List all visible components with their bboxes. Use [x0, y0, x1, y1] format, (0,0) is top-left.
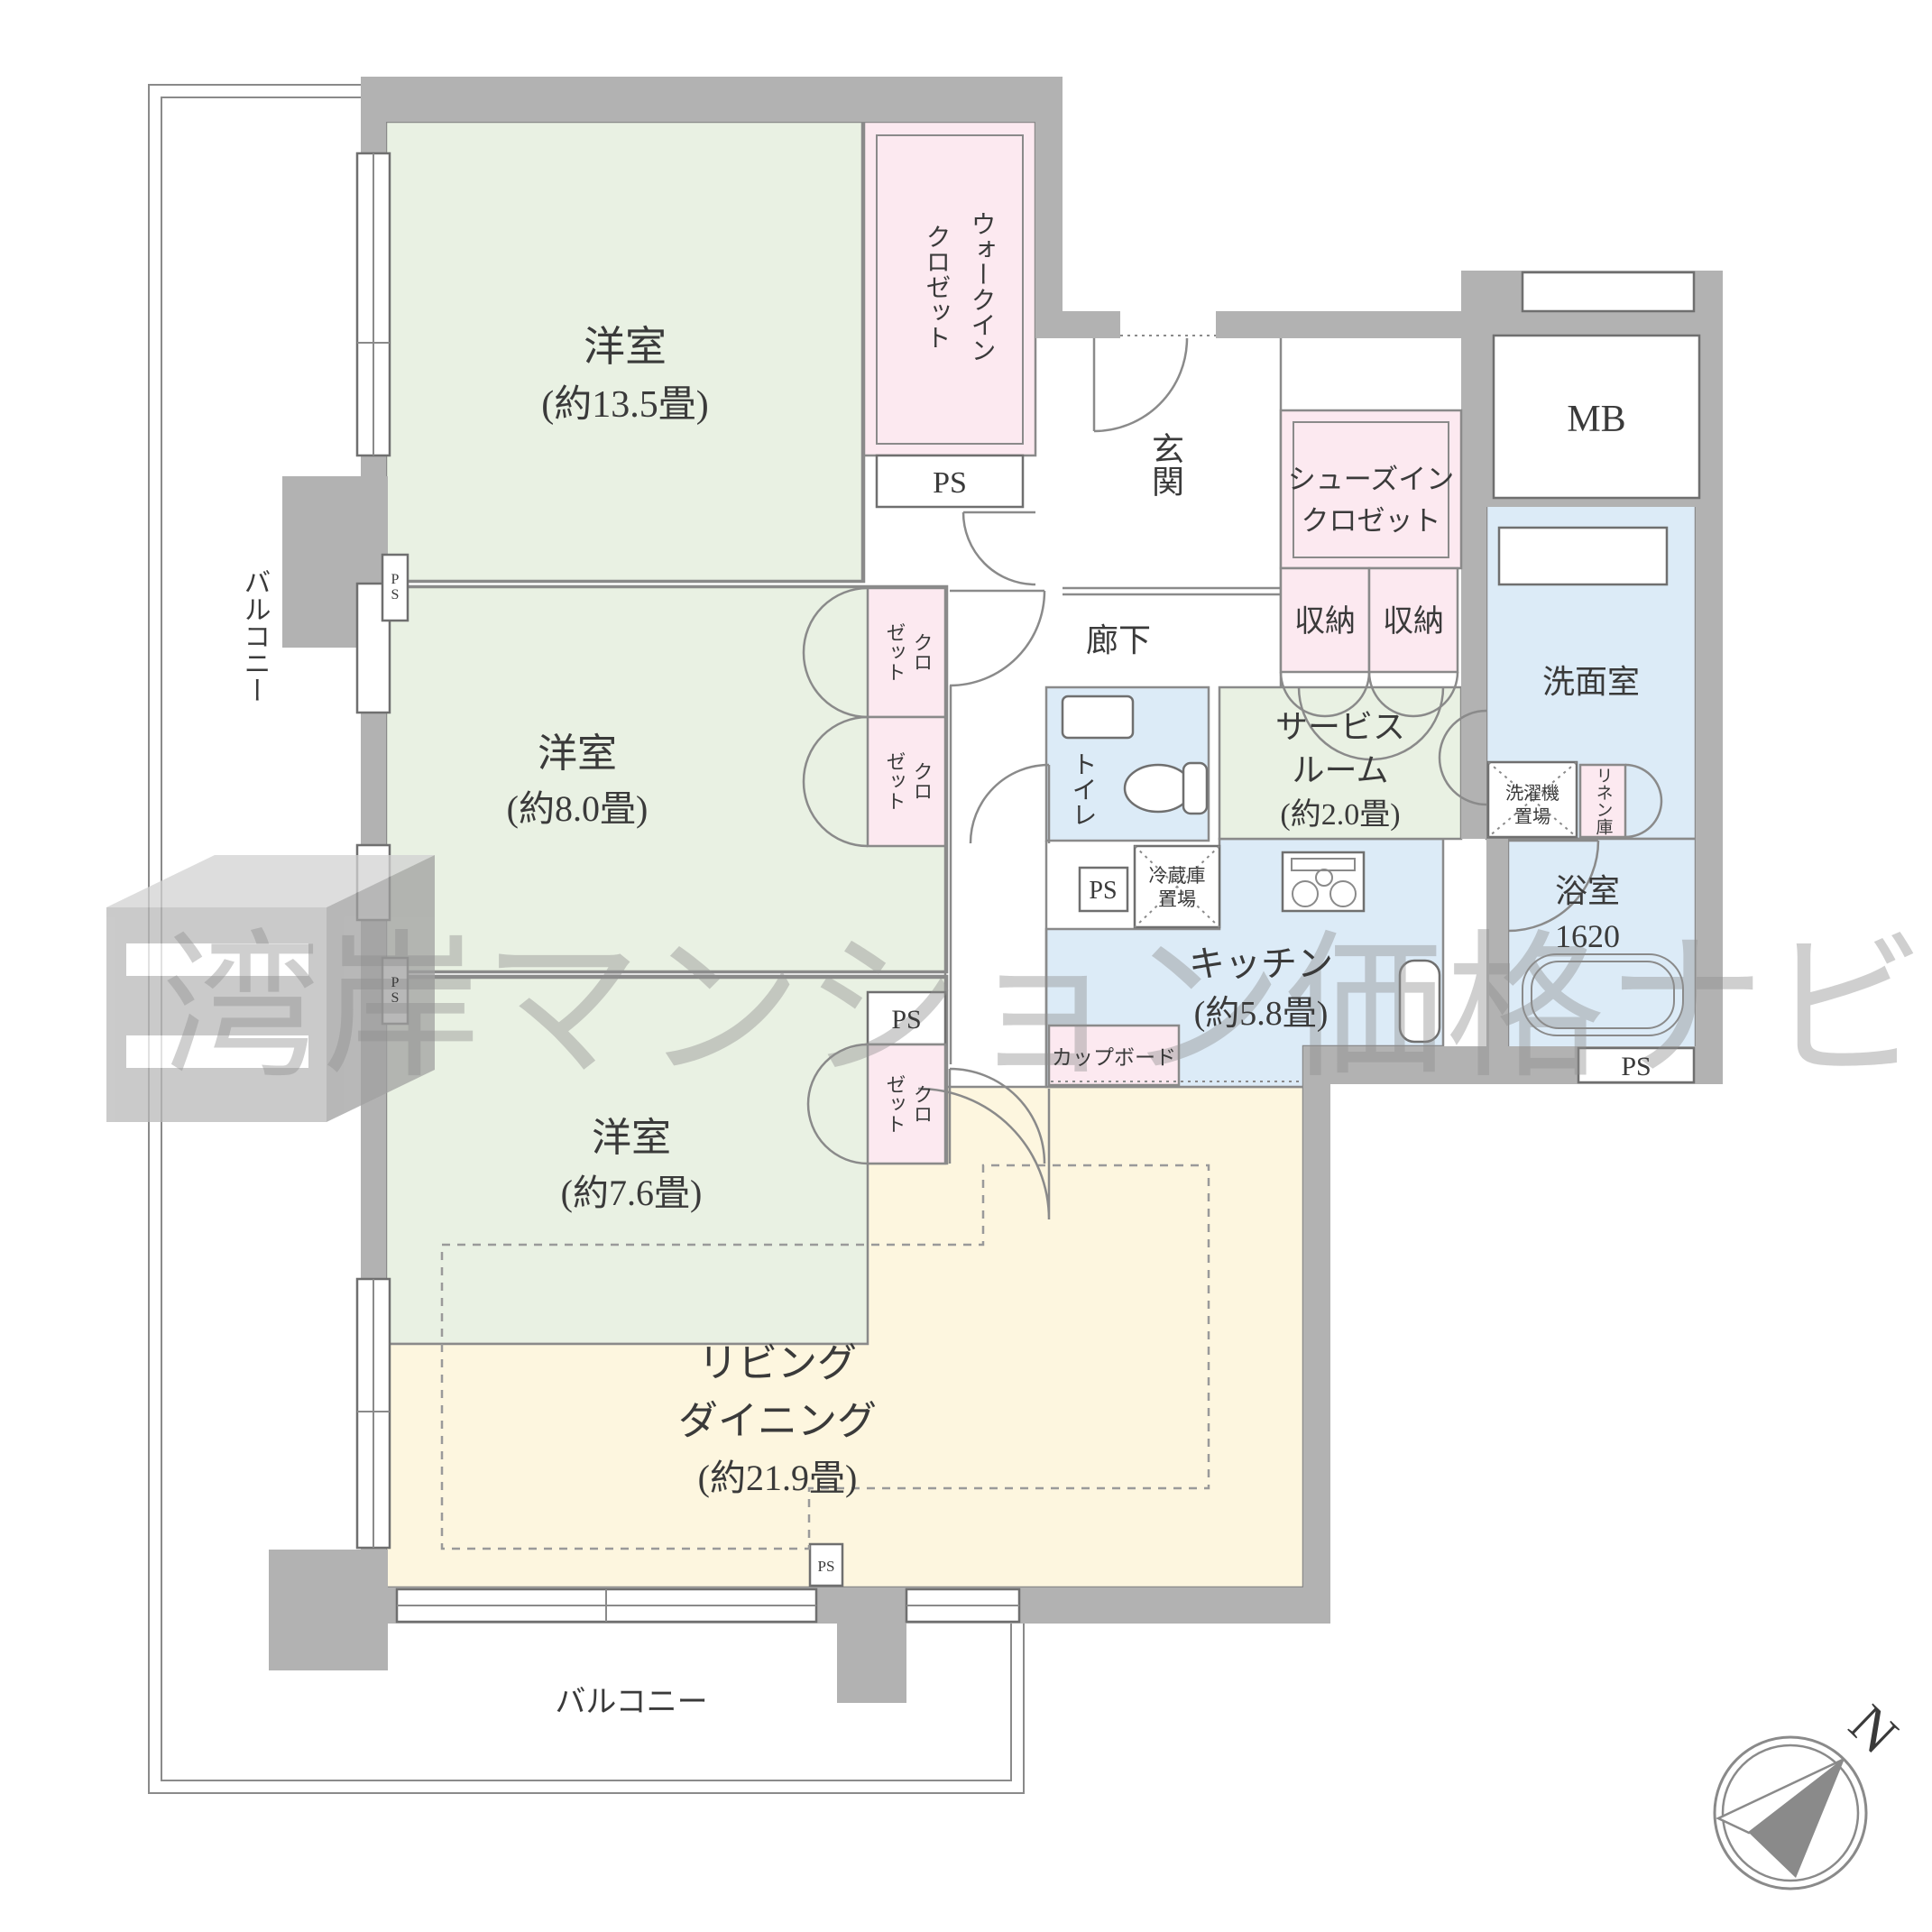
entrance-step-line [1063, 588, 1281, 594]
label-living-size: (約21.9畳) [698, 1458, 858, 1498]
room-western-8 [386, 586, 947, 972]
label-western13-size: (約13.5畳) [541, 384, 708, 426]
label-fridge-line1: 冷蔵庫 [1149, 865, 1206, 887]
door-arc-western8 [950, 591, 1044, 685]
label-closet-upper-col1: クロ [911, 632, 934, 672]
label-sic-line1: シューズイン [1288, 464, 1454, 495]
label-western8-name: 洋室 [538, 731, 617, 776]
label-service-line1: サービス [1275, 709, 1405, 745]
toilet-seat [1183, 763, 1207, 814]
label-linen: リネン庫 [1594, 767, 1614, 835]
toilet-bowl [1125, 765, 1191, 812]
label-ps-wic: PS [933, 466, 967, 500]
wall [1486, 498, 1699, 507]
label-closet-lower-col1: クロ [911, 761, 934, 801]
wall [1035, 77, 1063, 338]
label-toilet: トイレ [1069, 751, 1097, 827]
label-western7-size: (約7.6畳) [561, 1173, 703, 1213]
floor-plan-page: 湾岸マンション価格ナビ 洋室 (約13.5畳) ウォークイン クロゼット PS … [0, 0, 1932, 1932]
label-wic-col1: ウォークイン [968, 211, 996, 363]
wall [361, 77, 1063, 122]
label-balcony-left: バルコニー [240, 568, 270, 704]
wall [1303, 1046, 1330, 1587]
wall [1063, 311, 1120, 338]
label-storage-right: 収納 [1383, 604, 1444, 639]
entrance-door [1094, 338, 1187, 431]
label-closet76-col1: クロ [911, 1084, 934, 1124]
label-closet76-col2: ゼット [884, 1074, 906, 1134]
door-arc-toilet [971, 765, 1049, 843]
label-kitchen-size: (約5.8畳) [1194, 995, 1329, 1033]
label-storage-left: 収納 [1294, 604, 1356, 639]
wall [1461, 336, 1494, 505]
label-cupboard: カップボード [1052, 1046, 1176, 1069]
label-closet-lower-col2: ゼット [884, 751, 906, 811]
compass-n-label: N [1837, 1694, 1909, 1766]
washroom-counter [1499, 528, 1667, 584]
label-fridge-line2: 置場 [1158, 888, 1196, 910]
wall [1216, 311, 1470, 338]
label-washer-line2: 置場 [1514, 806, 1550, 827]
label-washer-line1: 洗濯機 [1505, 783, 1559, 804]
label-living-line2: ダイニング [678, 1399, 877, 1443]
label-washroom: 洗面室 [1542, 664, 1640, 700]
label-ps-bath: PS [1621, 1052, 1651, 1081]
label-service-size: (約2.0畳) [1280, 797, 1400, 832]
label-ps-wall-upper: PS [388, 572, 403, 603]
wall-pillar [269, 1550, 388, 1670]
wall-pillar [837, 1587, 906, 1703]
stove-fixture [1283, 852, 1364, 911]
compass: N [1715, 1694, 1909, 1889]
label-mb: MB [1567, 399, 1625, 440]
label-ps-wall-lower: PS [388, 975, 403, 1006]
floor-plan-canvas: 湾岸マンション価格ナビ 洋室 (約13.5畳) ウォークイン クロゼット PS … [0, 0, 1932, 1932]
window [1523, 272, 1694, 311]
toilet-tank [1063, 696, 1133, 738]
label-ps-living: PS [818, 1558, 835, 1575]
label-western13-name: 洋室 [584, 324, 667, 370]
label-sic-line2: クロゼット [1302, 505, 1441, 537]
wall [1461, 505, 1486, 839]
label-ps-kitchen: PS [1089, 877, 1117, 905]
label-bath-size: 1620 [1555, 918, 1620, 954]
label-living-line1: リビング [698, 1341, 857, 1385]
label-ps-76: PS [891, 1005, 921, 1035]
label-closet-upper-col2: ゼット [884, 622, 906, 682]
label-bath-name: 浴室 [1555, 873, 1620, 909]
label-western7-name: 洋室 [592, 1116, 671, 1160]
label-service-line2: ルーム [1293, 752, 1389, 788]
closet-lower-box [868, 717, 945, 846]
label-hallway: 廊下 [1086, 622, 1151, 658]
label-western8-size: (約8.0畳) [507, 788, 649, 829]
door-arc-wic [963, 512, 1035, 584]
watermark-text: 湾岸マンション価格ナビ [161, 920, 1927, 1097]
label-balcony-bottom: バルコニー [555, 1686, 707, 1719]
label-kitchen-name: キッチン [1189, 943, 1333, 984]
label-entrance: 玄関 [1147, 432, 1183, 497]
closet-upper-box [868, 588, 945, 717]
partition-13-8 [386, 581, 864, 587]
label-wic-col2: クロゼット [923, 224, 951, 350]
